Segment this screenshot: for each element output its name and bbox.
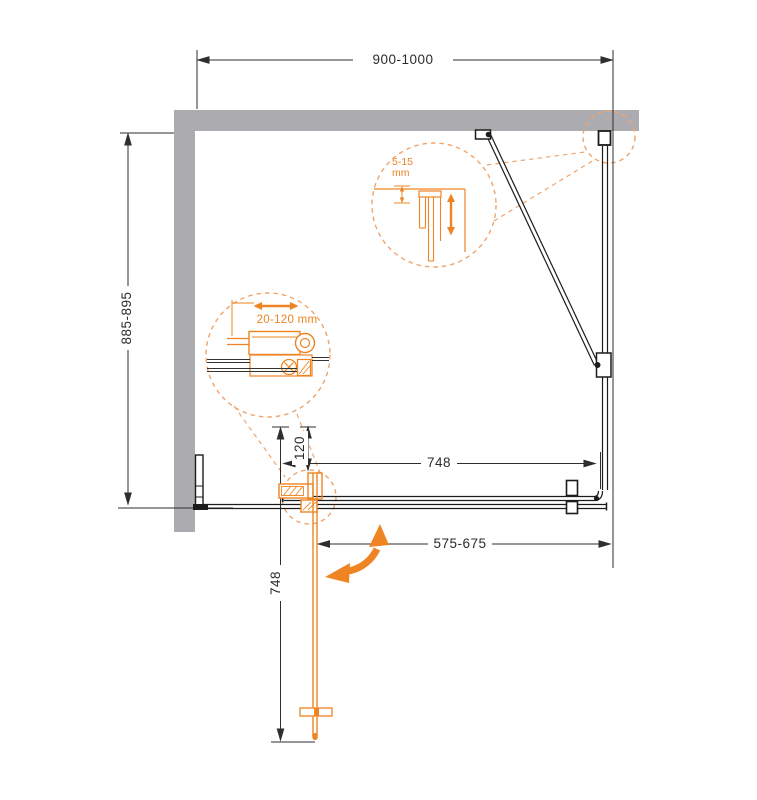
shower-enclosure-plan-svg	[0, 0, 757, 800]
wall-mount-profile	[599, 131, 611, 145]
wall-top	[174, 110, 639, 131]
adjustment-arrow-vertical	[447, 194, 455, 236]
dimension-door-width-closed: 748	[421, 455, 457, 471]
door-closed-position	[283, 491, 603, 502]
detail-profile-gap-drawing	[374, 186, 465, 261]
dimension-left-depth: 885-895	[119, 286, 135, 350]
detail-label-hinge-range: 20-120 mm	[247, 314, 327, 327]
door-edge-tip	[312, 733, 317, 740]
dimension-pivot-offset: 120	[292, 431, 308, 465]
detail-label-profile-gap: 5-15 mm	[392, 157, 432, 179]
door-swing-arrow	[325, 524, 389, 583]
detail-hinge-drawing	[207, 300, 329, 376]
dimension-door-width-open: 748	[268, 565, 284, 601]
wall-left	[174, 110, 195, 532]
pivot-mechanism	[279, 473, 322, 512]
glass-clamp-upper	[567, 481, 578, 496]
dimension-top-width: 900-1000	[353, 52, 453, 68]
technical-drawing-canvas: 900-1000 885-895 748 120 575-675 748 5-1…	[0, 0, 757, 800]
left-wall-profile	[193, 455, 208, 510]
door-open-position	[300, 473, 332, 740]
glass-clamp-lower	[567, 502, 578, 514]
fixed-side-panel	[599, 131, 611, 490]
support-bar	[476, 130, 612, 377]
hinge-pivot-circle	[296, 334, 315, 353]
door-handle	[300, 708, 332, 716]
dimension-opening-width: 575-675	[428, 536, 492, 552]
